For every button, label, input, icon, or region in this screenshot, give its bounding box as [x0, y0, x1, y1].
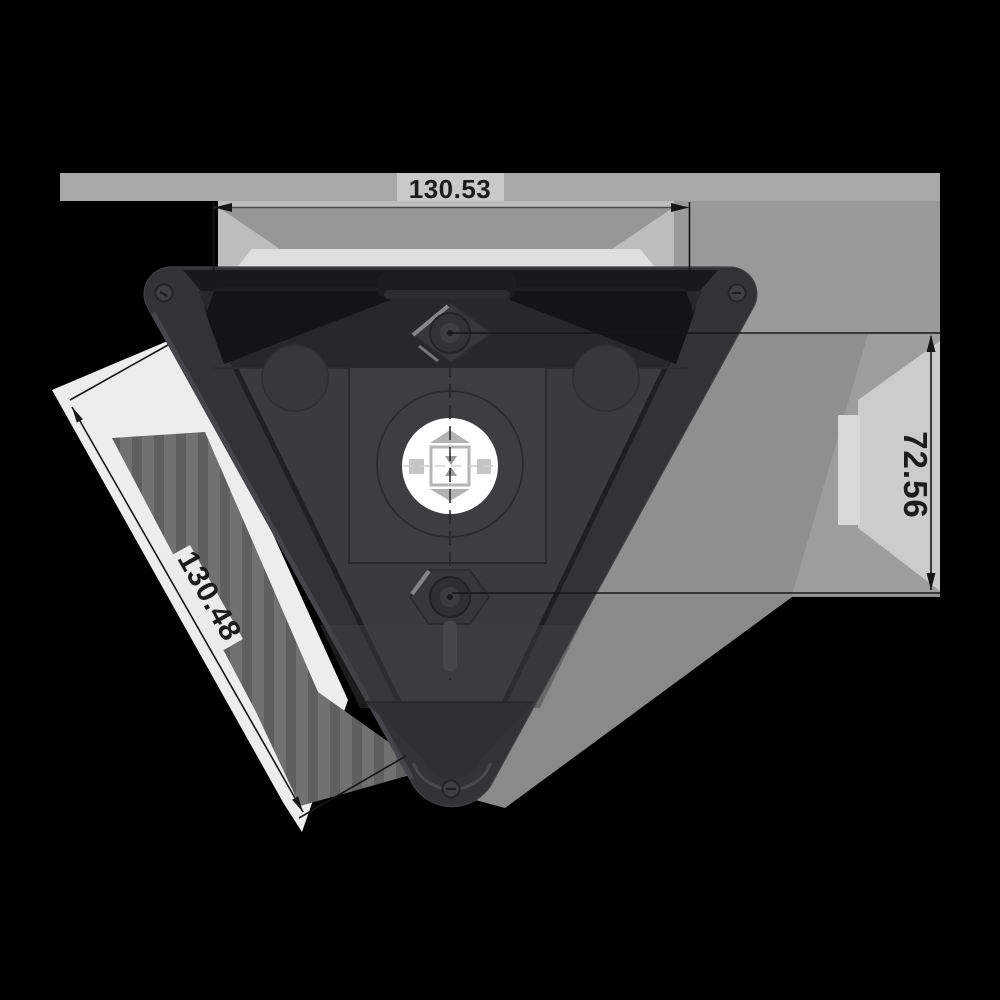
- svg-text:130.53: 130.53: [409, 174, 492, 204]
- svg-text:72.56: 72.56: [897, 431, 934, 519]
